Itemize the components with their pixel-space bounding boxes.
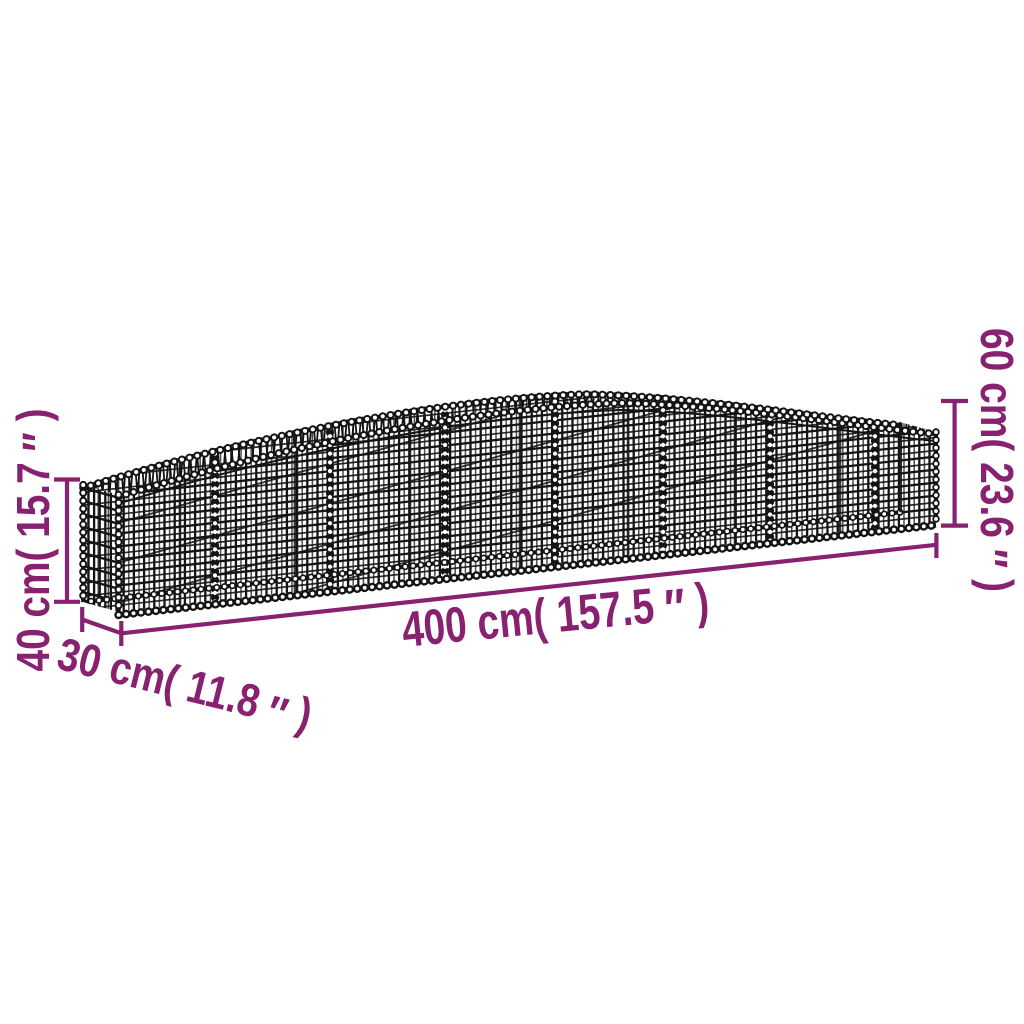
svg-text:40 cm( 15.7 ″ ): 40 cm( 15.7 ″ ) bbox=[7, 409, 67, 672]
svg-text:60 cm( 23.6 ″ ): 60 cm( 23.6 ″ ) bbox=[963, 328, 1023, 592]
